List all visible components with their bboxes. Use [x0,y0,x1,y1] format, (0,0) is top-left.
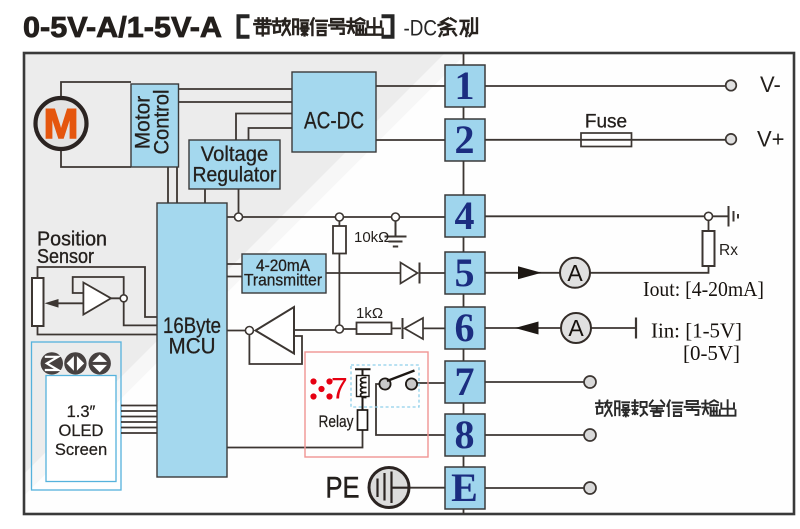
svg-text:Iin: [1-5V]: Iin: [1-5V] [651,319,742,343]
svg-text:1kΩ: 1kΩ [356,305,383,322]
svg-text:MCU: MCU [169,334,216,359]
svg-text:Relay: Relay [319,413,355,431]
svg-text:V+: V+ [757,127,785,152]
svg-text:-DC: -DC [404,16,438,41]
svg-text:V-: V- [760,72,781,97]
svg-text:10kΩ: 10kΩ [354,229,389,246]
svg-text:4: 4 [455,193,475,238]
svg-text:6: 6 [455,305,475,350]
svg-text:2: 2 [455,117,475,162]
svg-text:A: A [568,315,584,341]
svg-text:7: 7 [455,359,475,404]
svg-text:Transmitter: Transmitter [244,271,322,290]
svg-text:1: 1 [455,63,475,108]
svg-text:E: E [451,465,478,510]
svg-text:[0-5V]: [0-5V] [683,341,740,365]
svg-text:AC-DC: AC-DC [304,108,364,135]
svg-text:PE: PE [326,472,360,505]
svg-text:1.3″: 1.3″ [67,403,96,421]
svg-text:M: M [44,100,79,147]
svg-text:Fuse: Fuse [585,112,627,133]
svg-text:8: 8 [455,412,475,457]
svg-text:A: A [567,260,583,286]
svg-text:Iout: [4-20mA]: Iout: [4-20mA] [643,277,764,301]
svg-text:OLED: OLED [59,422,104,440]
svg-text:Regulator: Regulator [193,164,277,187]
svg-text:7: 7 [331,373,348,406]
svg-text:Rx: Rx [719,242,738,259]
svg-text:5: 5 [455,250,475,295]
svg-text:0-5V-A/1-5V-A: 0-5V-A/1-5V-A [23,12,222,44]
svg-text:Control: Control [151,90,174,155]
svg-text:Sensor: Sensor [37,245,94,268]
svg-text:Screen: Screen [55,441,107,459]
